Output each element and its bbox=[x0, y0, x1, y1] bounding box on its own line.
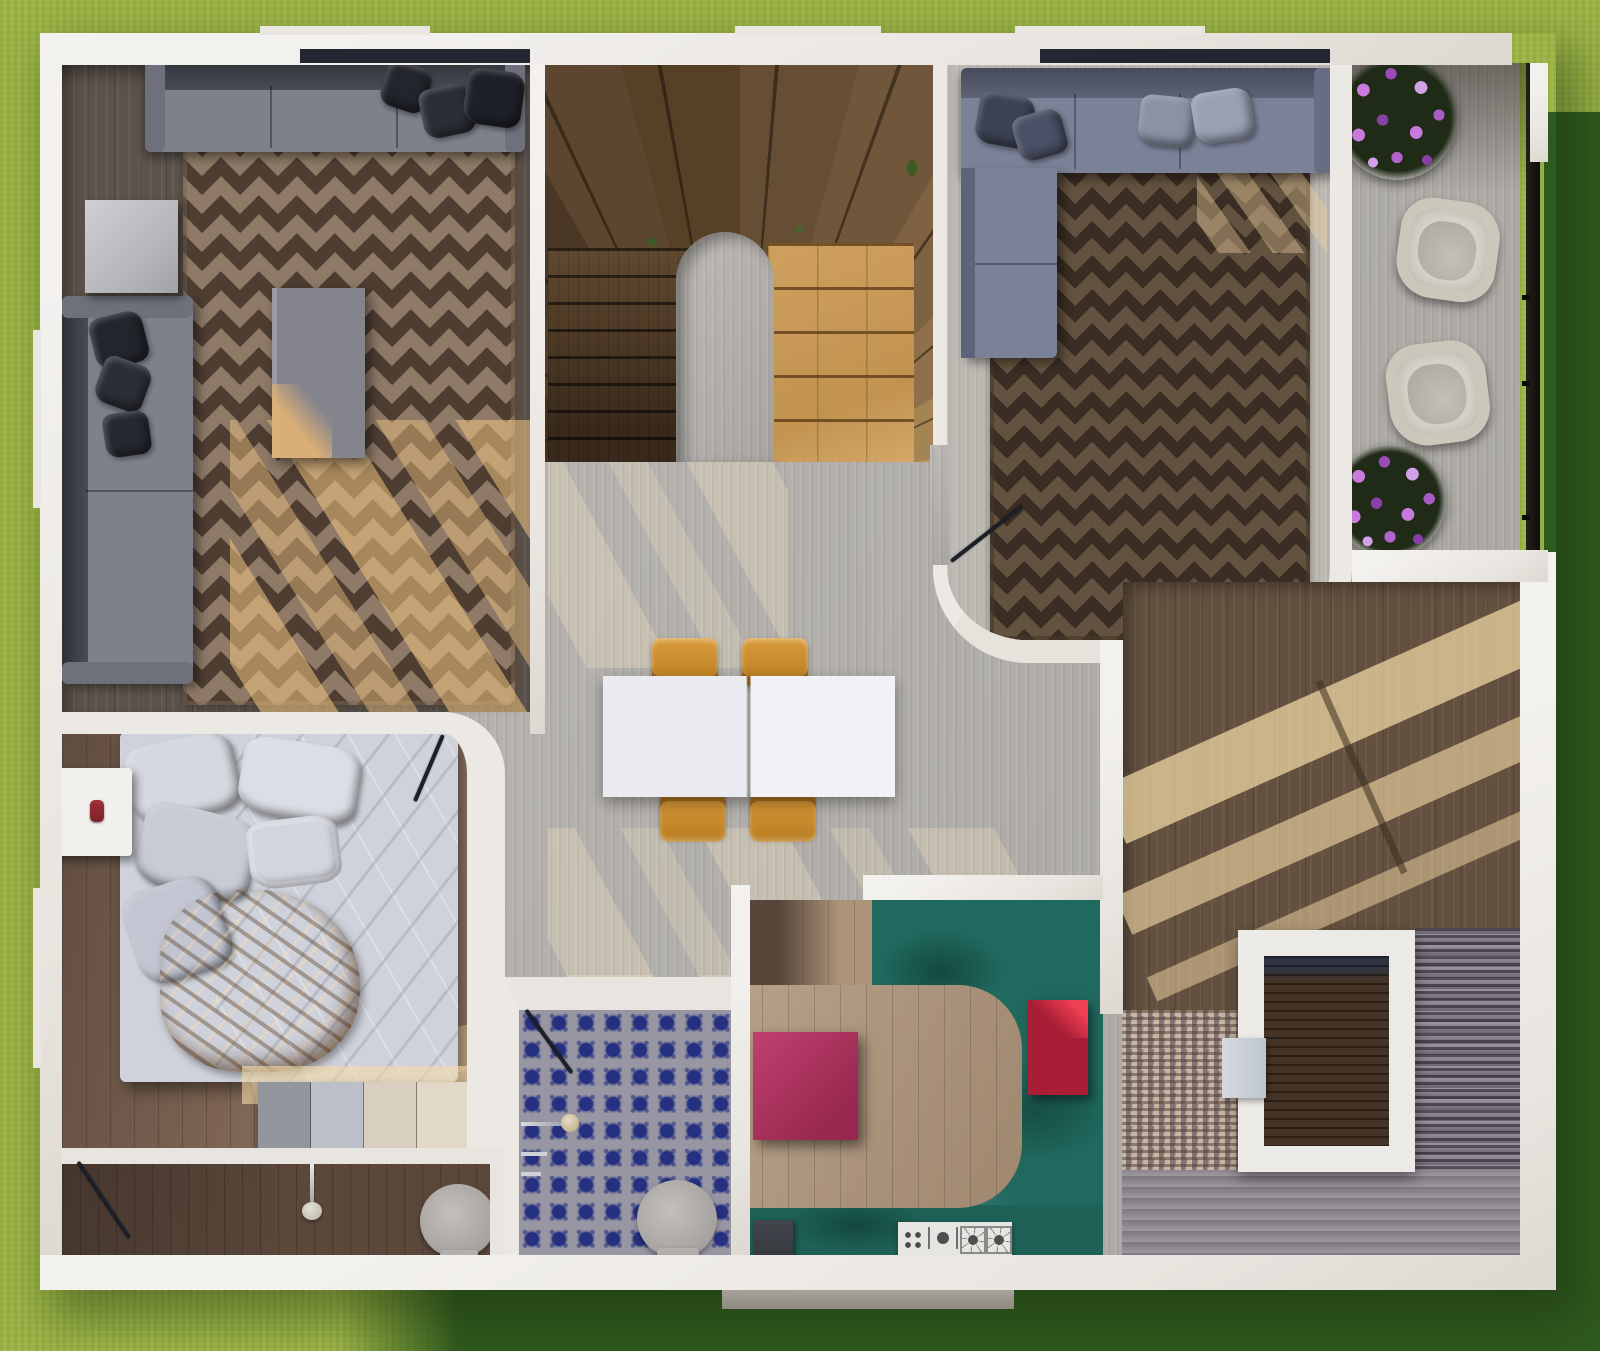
wall-topright-stub bbox=[1530, 63, 1548, 162]
stairwell-arch-void bbox=[676, 232, 774, 462]
window-ledge bbox=[1015, 26, 1205, 35]
grate-burner bbox=[960, 1226, 986, 1254]
wall-kitchen-left bbox=[731, 885, 750, 1255]
dresser-panel bbox=[258, 1082, 311, 1150]
stool-highlight bbox=[1028, 1000, 1088, 1038]
deck-armchair bbox=[1382, 336, 1494, 449]
railing-bracket bbox=[1522, 381, 1530, 386]
stair-plant bbox=[795, 225, 803, 233]
kitchen-island-magenta bbox=[753, 1032, 858, 1140]
dining-table bbox=[603, 676, 895, 797]
nightstand-red-accessory bbox=[90, 800, 104, 822]
bedroom bbox=[40, 712, 505, 1164]
wall-exterior-bottom bbox=[40, 1255, 1556, 1290]
toilet bbox=[637, 1180, 717, 1258]
sofa-pillow bbox=[461, 66, 526, 130]
sofa-armrest bbox=[62, 662, 193, 684]
living-coffee-table bbox=[272, 288, 365, 458]
washbasin-tap bbox=[310, 1164, 314, 1206]
dresser-panel bbox=[364, 1082, 417, 1150]
family-room-doorway bbox=[930, 445, 950, 565]
railing-bracket bbox=[1522, 515, 1530, 520]
flower-planter bbox=[1352, 445, 1446, 550]
family-sofa-top bbox=[961, 68, 1336, 173]
floorplan-render bbox=[0, 0, 1600, 1351]
kitchen-stool-crimson bbox=[1028, 1000, 1088, 1095]
family-window-strip bbox=[1040, 49, 1330, 63]
hall-sun-patch-stairs bbox=[548, 458, 788, 668]
sofa-seat-seam bbox=[961, 263, 1057, 265]
wall-exterior-right bbox=[1520, 552, 1556, 1290]
sofa-armrest bbox=[1314, 68, 1336, 173]
stair-plant bbox=[907, 160, 917, 176]
stair-flight-dark bbox=[548, 248, 692, 462]
window-ledge bbox=[260, 26, 430, 35]
wall-stair-left bbox=[530, 65, 545, 734]
dining-chair bbox=[750, 792, 816, 842]
wall-hall-stub bbox=[1100, 640, 1123, 1014]
sofa-seat-seam bbox=[86, 490, 193, 492]
sofa-pillow bbox=[101, 409, 153, 459]
window-ledge bbox=[735, 26, 881, 35]
grate-burner bbox=[986, 1226, 1012, 1254]
living-side-table bbox=[85, 200, 178, 293]
shower-handle bbox=[521, 1172, 541, 1176]
family-room bbox=[933, 63, 1352, 663]
shower-handle bbox=[521, 1152, 547, 1156]
bracket-burner bbox=[928, 1227, 958, 1249]
burner-cap bbox=[937, 1232, 949, 1244]
living-sofa-top bbox=[145, 56, 525, 152]
railing-bracket bbox=[1522, 295, 1530, 300]
sofa-seat-seam bbox=[1074, 94, 1076, 169]
sofa-backrest bbox=[961, 68, 1336, 98]
sofa-pillow bbox=[1137, 93, 1198, 149]
sofa-backrest bbox=[62, 296, 88, 684]
bed-pillow bbox=[244, 813, 344, 892]
sofa-pillow bbox=[1189, 86, 1256, 147]
stair-plant bbox=[648, 237, 657, 246]
living-room-rug-sunlight bbox=[230, 420, 530, 712]
bed-blanket-tan bbox=[160, 890, 360, 1072]
dining-chair bbox=[660, 792, 726, 842]
granite-flight-dark bbox=[1415, 928, 1520, 1172]
stair-flight-oak bbox=[768, 243, 914, 462]
shower-knob bbox=[561, 1114, 579, 1132]
family-sofa-chaise bbox=[961, 168, 1057, 358]
sofa-armrest bbox=[145, 56, 165, 152]
wall-deck-bottom bbox=[1352, 550, 1548, 582]
living-sofa-left bbox=[62, 296, 193, 684]
wall-exterior-left bbox=[40, 33, 62, 1290]
dresser bbox=[258, 1082, 470, 1150]
washbasin bbox=[302, 1202, 322, 1220]
dresser-panel bbox=[417, 1082, 470, 1150]
stairwell-side-step bbox=[1222, 1038, 1266, 1098]
shower-pipe bbox=[521, 1122, 565, 1126]
coffee-table-sunlit-corner bbox=[272, 384, 332, 458]
deck-armchair bbox=[1392, 194, 1505, 307]
entry-threshold bbox=[722, 1288, 1014, 1309]
dresser-panel bbox=[311, 1082, 364, 1150]
toilet bbox=[420, 1184, 496, 1258]
deck bbox=[1352, 63, 1540, 550]
nightstand bbox=[50, 768, 132, 856]
living-window-strip bbox=[300, 49, 530, 63]
window-ledge bbox=[33, 888, 41, 1068]
wall-kitchen-top bbox=[863, 875, 1103, 900]
stair-hall bbox=[545, 65, 935, 462]
granite-landing-steps bbox=[1122, 1170, 1520, 1255]
bathroom-blue bbox=[505, 977, 750, 1290]
sofa-seat-seam bbox=[270, 86, 272, 148]
window-ledge bbox=[33, 330, 41, 508]
sofa-side bbox=[961, 168, 975, 358]
bed bbox=[120, 732, 458, 1082]
